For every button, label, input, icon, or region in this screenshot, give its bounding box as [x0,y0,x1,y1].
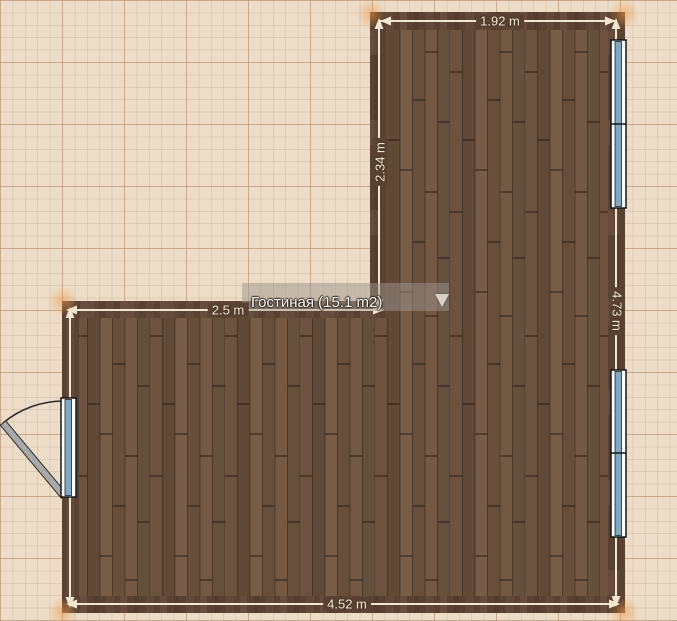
dimension-label-top[interactable]: 1.92 m [476,14,524,29]
label-handle-icon[interactable] [435,294,449,307]
room-name-label[interactable]: Гостиная (15.1 m2) [251,294,382,311]
door-swing-arc [3,401,64,423]
floor-plan-canvas: 1.92 m 2.34 m 4.73 m 2.5 m 4.52 m Гостин… [0,0,677,621]
door-glass [65,400,72,496]
door[interactable] [0,398,76,498]
window-upper[interactable] [611,40,626,208]
door-leaf [0,421,66,498]
dimension-label-middle[interactable]: 2.5 m [208,303,249,318]
window-lower[interactable] [611,370,626,537]
dimension-label-upper-left[interactable]: 2.34 m [373,138,388,186]
dimension-label-right[interactable]: 4.73 m [610,287,625,335]
dimension-label-bottom[interactable]: 4.52 m [323,597,371,612]
